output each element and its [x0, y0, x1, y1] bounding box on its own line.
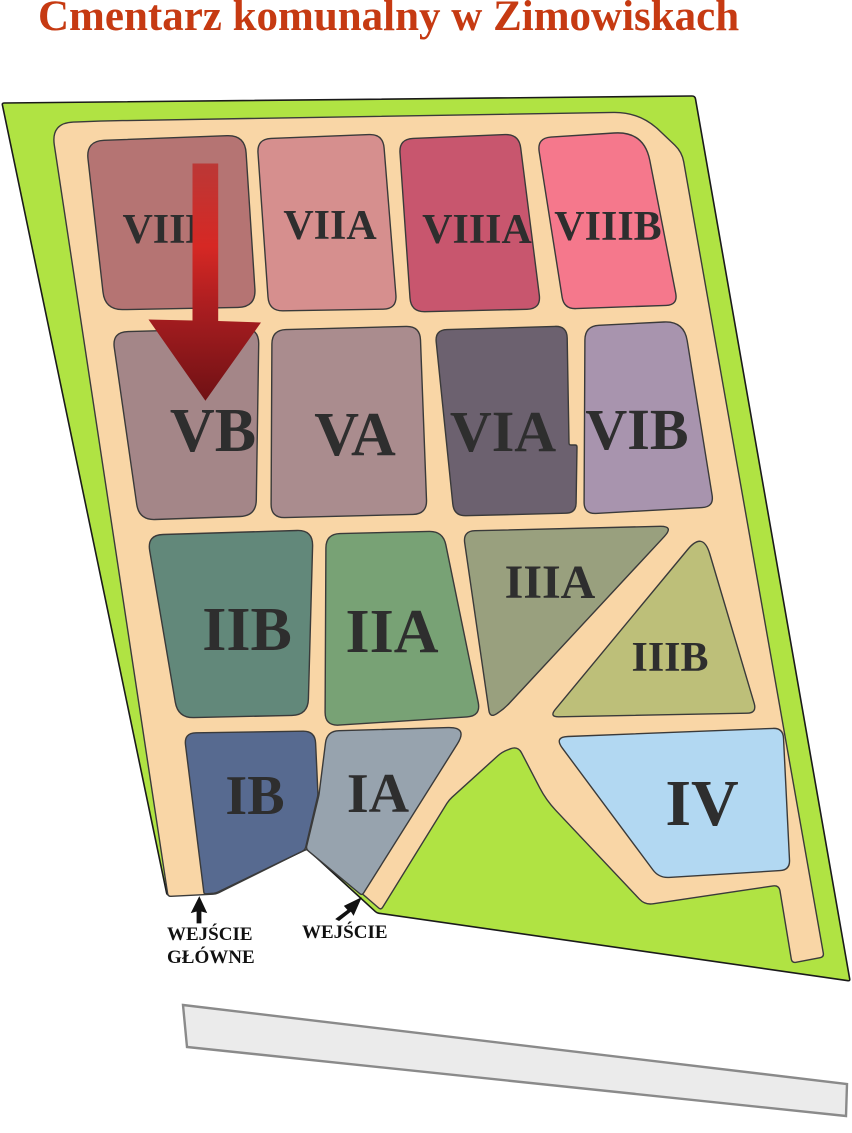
svg-text:IIIB: IIIB: [631, 635, 708, 681]
svg-text:VIB: VIB: [585, 397, 688, 462]
svg-text:VIIIB: VIIIB: [554, 204, 661, 250]
svg-text:GŁÓWNE: GŁÓWNE: [167, 946, 255, 968]
svg-text:VB: VB: [170, 397, 256, 465]
svg-text:VIA: VIA: [450, 399, 556, 464]
svg-text:VIIA: VIIA: [283, 203, 377, 249]
svg-text:IIA: IIA: [345, 598, 438, 666]
svg-text:VIIIA: VIIIA: [422, 207, 532, 253]
svg-text:WEJŚCIE: WEJŚCIE: [302, 921, 388, 943]
svg-text:IA: IA: [347, 763, 410, 825]
svg-text:VA: VA: [314, 401, 396, 469]
svg-text:IIIA: IIIA: [505, 556, 596, 609]
svg-text:WEJŚCIE: WEJŚCIE: [167, 923, 253, 945]
svg-text:IIB: IIB: [202, 596, 292, 664]
svg-text:IV: IV: [665, 767, 738, 840]
svg-text:IB: IB: [225, 765, 284, 827]
